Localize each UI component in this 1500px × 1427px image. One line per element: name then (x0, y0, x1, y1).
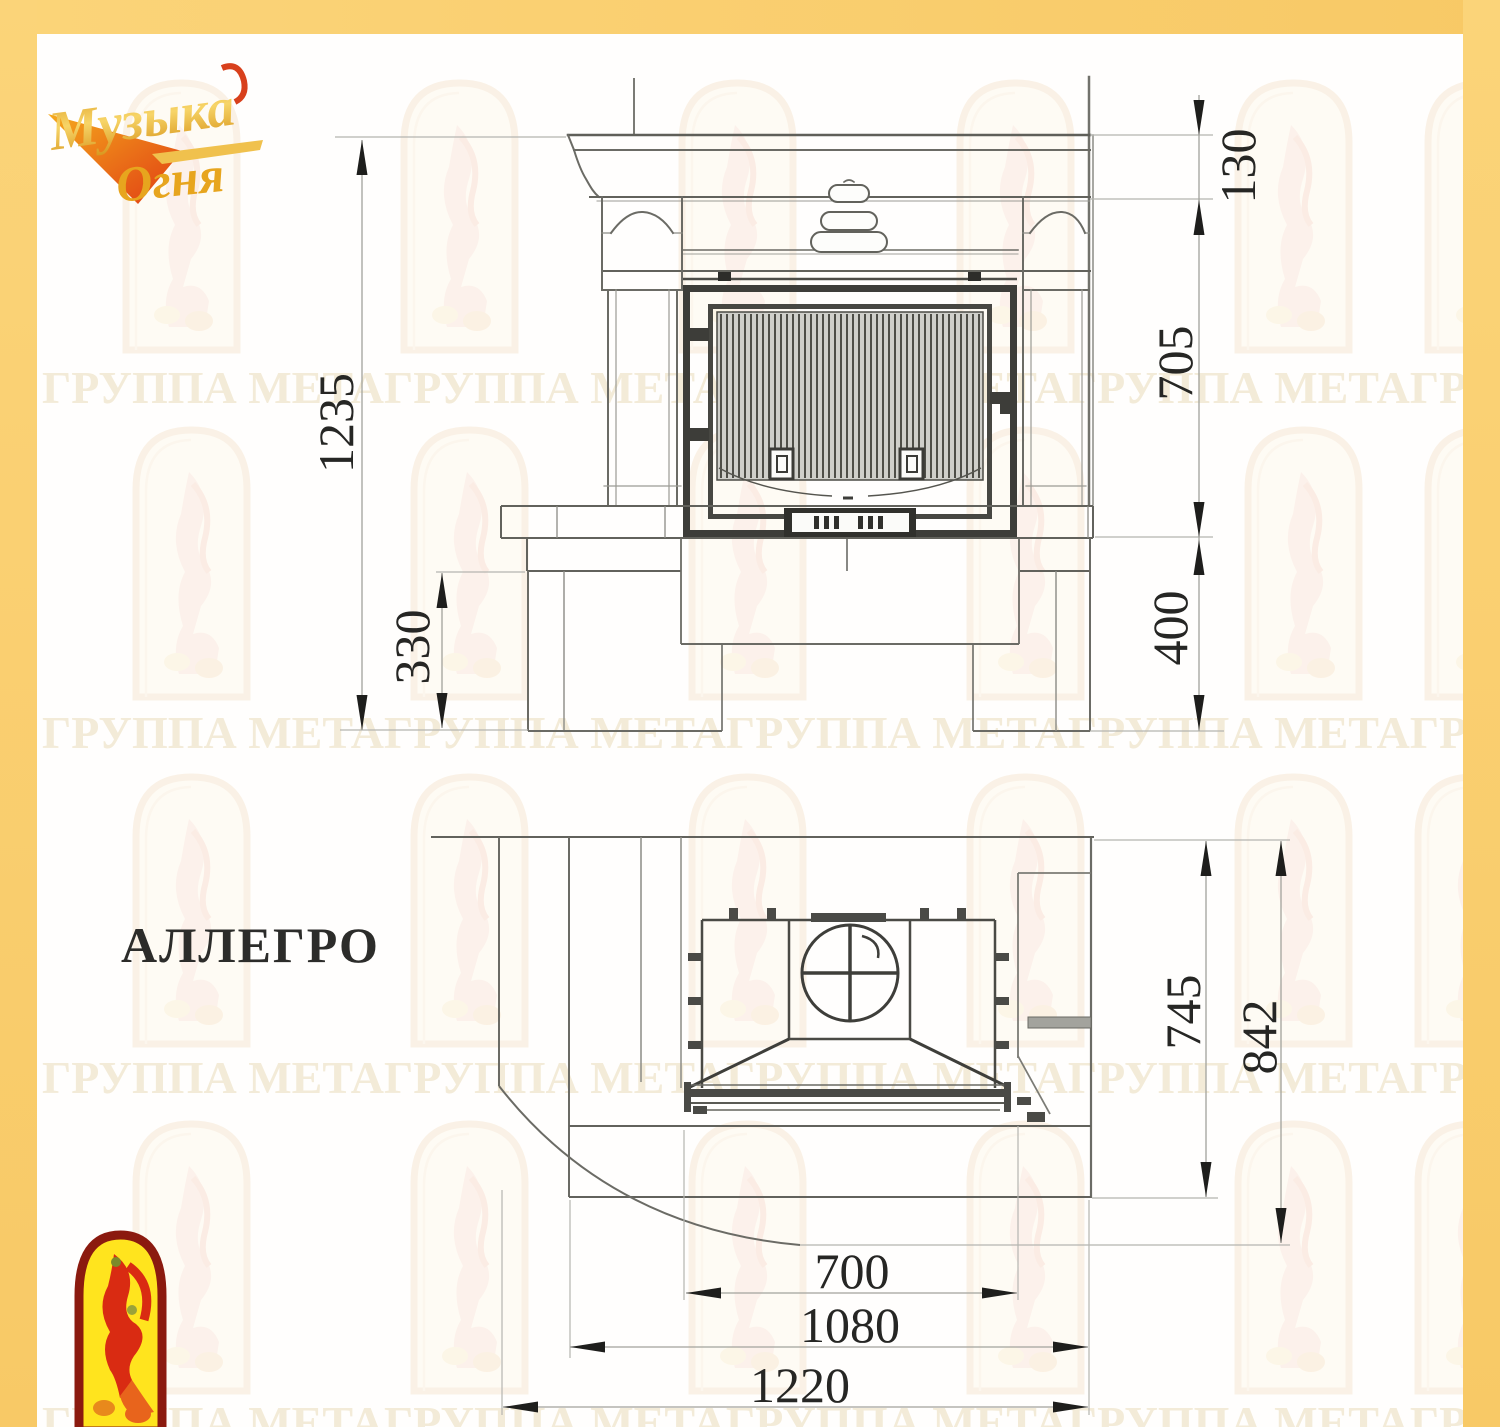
svg-text:1220: 1220 (750, 1357, 850, 1413)
svg-text:705: 705 (1147, 326, 1203, 401)
svg-text:Огня: Огня (113, 146, 226, 213)
svg-text:АЛЛЕГРО: АЛЛЕГРО (121, 917, 380, 973)
svg-text:330: 330 (384, 610, 440, 685)
svg-text:130: 130 (1210, 129, 1266, 204)
svg-text:1235: 1235 (308, 373, 364, 473)
svg-text:400: 400 (1142, 591, 1198, 666)
svg-text:ГРУППА МЕТАГРУППА МЕТАГРУППА М: ГРУППА МЕТАГРУППА МЕТАГРУППА МЕТАГРУППА … (42, 707, 1500, 758)
svg-text:700: 700 (815, 1243, 890, 1299)
svg-text:745: 745 (1155, 975, 1211, 1050)
svg-text:842: 842 (1231, 1000, 1287, 1075)
svg-text:1080: 1080 (800, 1297, 900, 1353)
